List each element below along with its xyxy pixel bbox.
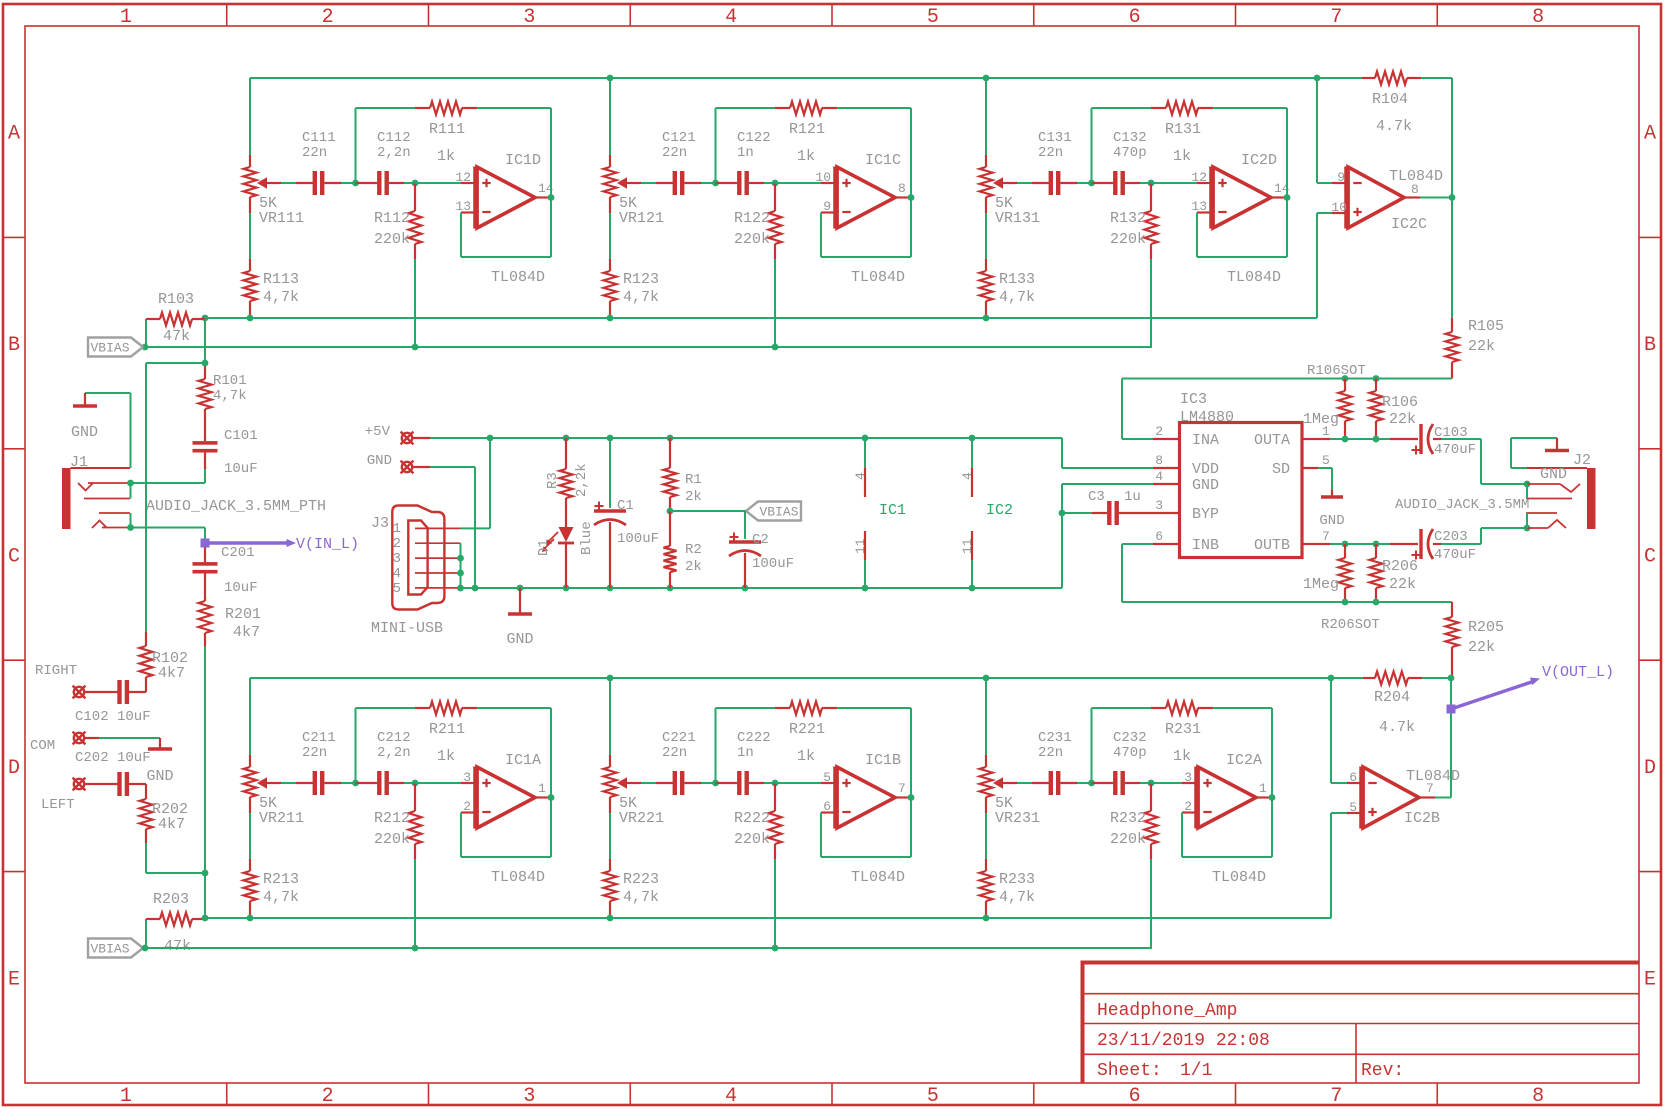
svg-text:D: D (1644, 757, 1656, 780)
svg-text:IC1: IC1 (879, 502, 906, 519)
svg-text:22n: 22n (1038, 745, 1063, 761)
svg-text:C132: C132 (1113, 130, 1147, 146)
svg-text:4: 4 (725, 6, 737, 29)
svg-text:R232: R232 (1110, 810, 1146, 827)
svg-text:1Meg: 1Meg (1303, 411, 1339, 428)
svg-text:C203: C203 (1434, 529, 1468, 545)
svg-text:4k7: 4k7 (158, 816, 185, 833)
svg-text:C: C (1644, 546, 1656, 569)
svg-text:220k: 220k (374, 231, 410, 248)
svg-text:Headphone_Amp: Headphone_Amp (1097, 1001, 1237, 1021)
svg-text:22n: 22n (662, 745, 687, 761)
svg-text:R233: R233 (999, 871, 1035, 888)
svg-text:R104: R104 (1372, 91, 1408, 108)
svg-text:C212: C212 (377, 730, 411, 746)
svg-text:3: 3 (393, 551, 401, 567)
svg-text:R212: R212 (374, 810, 410, 827)
svg-text:R223: R223 (623, 871, 659, 888)
svg-text:C1: C1 (617, 498, 634, 514)
svg-text:C122: C122 (737, 130, 771, 146)
svg-text:4,7k: 4,7k (623, 889, 659, 906)
svg-text:11: 11 (853, 538, 868, 554)
svg-text:7: 7 (1330, 1085, 1342, 1108)
svg-text:10uF: 10uF (224, 580, 258, 596)
svg-text:470p: 470p (1113, 745, 1147, 761)
svg-text:2,2k: 2,2k (574, 463, 590, 497)
svg-text:INA: INA (1192, 432, 1219, 449)
svg-text:VR131: VR131 (995, 210, 1040, 227)
svg-text:4,7k: 4,7k (999, 889, 1035, 906)
svg-text:RIGHT: RIGHT (35, 663, 77, 679)
svg-text:13: 13 (1191, 199, 1207, 214)
svg-text:11: 11 (960, 538, 975, 554)
svg-text:A: A (8, 123, 20, 146)
svg-text:Sheet:: Sheet: (1097, 1061, 1162, 1081)
svg-text:SD: SD (1272, 461, 1290, 478)
svg-text:2k: 2k (685, 489, 702, 505)
svg-text:C231: C231 (1038, 730, 1072, 746)
svg-text:5: 5 (927, 1085, 939, 1108)
svg-text:R205: R205 (1468, 619, 1504, 636)
svg-text:IC3: IC3 (1180, 391, 1207, 408)
svg-text:R206SOT: R206SOT (1321, 617, 1380, 633)
svg-text:IC2B: IC2B (1404, 810, 1440, 827)
svg-text:2: 2 (322, 1085, 334, 1108)
svg-text:GND: GND (146, 768, 173, 785)
svg-text:C112: C112 (377, 130, 411, 146)
svg-text:12: 12 (1191, 170, 1207, 185)
svg-text:IC2D: IC2D (1241, 152, 1277, 169)
svg-text:6: 6 (1129, 1085, 1141, 1108)
svg-text:4: 4 (1155, 469, 1163, 484)
svg-text:IC1D: IC1D (505, 152, 541, 169)
svg-text:R231: R231 (1165, 721, 1201, 738)
svg-text:LM4880: LM4880 (1180, 409, 1234, 426)
svg-text:R122: R122 (734, 210, 770, 227)
svg-text:A: A (1644, 123, 1656, 146)
svg-text:B: B (8, 334, 20, 357)
svg-text:4,7k: 4,7k (263, 289, 299, 306)
svg-text:E: E (8, 968, 20, 991)
svg-text:470uF: 470uF (1434, 547, 1476, 563)
svg-text:3: 3 (463, 770, 471, 785)
svg-text:GND: GND (367, 453, 392, 469)
svg-text:220k: 220k (1110, 831, 1146, 848)
svg-text:1: 1 (1259, 781, 1267, 796)
svg-text:VBIAS: VBIAS (759, 505, 798, 520)
svg-text:TL084D: TL084D (1389, 168, 1443, 185)
svg-text:VDD: VDD (1192, 461, 1219, 478)
svg-text:R2: R2 (685, 542, 702, 558)
svg-text:6: 6 (823, 799, 831, 814)
svg-text:1k: 1k (797, 148, 815, 165)
svg-text:TL084D: TL084D (491, 269, 545, 286)
svg-text:22k: 22k (1468, 639, 1495, 656)
svg-text:R204: R204 (1374, 689, 1410, 706)
svg-text:1: 1 (393, 521, 401, 537)
svg-text:J2: J2 (1573, 452, 1591, 469)
svg-text:GND: GND (71, 424, 98, 441)
svg-text:2: 2 (463, 799, 471, 814)
svg-text:6: 6 (1155, 529, 1163, 544)
svg-text:VBIAS: VBIAS (90, 942, 129, 957)
svg-text:1/1: 1/1 (1180, 1061, 1212, 1081)
svg-text:12: 12 (455, 170, 471, 185)
svg-text:23/11/2019 22:08: 23/11/2019 22:08 (1097, 1031, 1270, 1051)
svg-text:C102 10uF: C102 10uF (75, 709, 151, 725)
svg-text:1k: 1k (1173, 148, 1191, 165)
svg-text:1: 1 (120, 1085, 132, 1108)
svg-text:7: 7 (1322, 529, 1330, 544)
svg-text:D: D (8, 757, 20, 780)
svg-text:22n: 22n (1038, 145, 1063, 161)
svg-text:1k: 1k (437, 748, 455, 765)
svg-text:OUTA: OUTA (1254, 432, 1290, 449)
svg-text:VR231: VR231 (995, 810, 1040, 827)
svg-text:GND: GND (1540, 466, 1567, 483)
svg-text:AUDIO_JACK_3.5MM_PTH: AUDIO_JACK_3.5MM_PTH (146, 498, 326, 515)
svg-text:C121: C121 (662, 130, 696, 146)
svg-text:E: E (1644, 968, 1656, 991)
svg-text:IC1C: IC1C (865, 152, 901, 169)
svg-text:9: 9 (823, 199, 831, 214)
svg-text:IC1A: IC1A (505, 752, 541, 769)
svg-text:47k: 47k (163, 328, 190, 345)
svg-text:5: 5 (1349, 800, 1357, 815)
svg-text:1: 1 (538, 781, 546, 796)
svg-text:6: 6 (1349, 770, 1357, 785)
svg-text:10: 10 (815, 170, 831, 185)
svg-text:IC2C: IC2C (1391, 216, 1427, 233)
svg-text:IC2: IC2 (986, 502, 1013, 519)
svg-text:R111: R111 (429, 121, 465, 138)
svg-text:J3: J3 (371, 515, 389, 532)
svg-text:4k7: 4k7 (158, 665, 185, 682)
svg-text:VR211: VR211 (259, 810, 304, 827)
svg-text:TL084D: TL084D (1406, 768, 1460, 785)
svg-text:7: 7 (898, 781, 906, 796)
svg-text:5: 5 (1322, 453, 1330, 468)
svg-text:R131: R131 (1165, 121, 1201, 138)
svg-text:2,2n: 2,2n (377, 145, 411, 161)
svg-text:TL084D: TL084D (1212, 869, 1266, 886)
svg-text:LEFT: LEFT (41, 797, 75, 813)
svg-text:3: 3 (523, 1085, 535, 1108)
svg-text:2: 2 (322, 6, 334, 29)
svg-text:1k: 1k (1173, 748, 1191, 765)
svg-text:10uF: 10uF (224, 461, 258, 477)
svg-text:R113: R113 (263, 271, 299, 288)
svg-text:C202 10uF: C202 10uF (75, 750, 151, 766)
svg-text:22n: 22n (302, 745, 327, 761)
svg-text:1n: 1n (737, 745, 754, 761)
svg-text:1k: 1k (797, 748, 815, 765)
svg-text:R203: R203 (153, 891, 189, 908)
svg-text:1n: 1n (737, 145, 754, 161)
svg-text:2: 2 (1184, 799, 1192, 814)
svg-text:R106SOT: R106SOT (1307, 363, 1366, 379)
svg-text:R112: R112 (374, 210, 410, 227)
svg-text:6: 6 (1129, 6, 1141, 29)
svg-text:C131: C131 (1038, 130, 1072, 146)
svg-text:TL084D: TL084D (851, 869, 905, 886)
svg-text:VBIAS: VBIAS (90, 341, 129, 356)
svg-text:VR121: VR121 (619, 210, 664, 227)
svg-text:8: 8 (898, 181, 906, 196)
svg-text:4: 4 (725, 1085, 737, 1108)
svg-text:VR221: VR221 (619, 810, 664, 827)
svg-text:10: 10 (1331, 200, 1347, 215)
svg-text:TL084D: TL084D (1227, 269, 1281, 286)
svg-text:2k: 2k (685, 559, 702, 575)
svg-text:C111: C111 (302, 130, 336, 146)
svg-text:4,7k: 4,7k (263, 889, 299, 906)
svg-text:C221: C221 (662, 730, 696, 746)
svg-text:VR111: VR111 (259, 210, 304, 227)
svg-text:9: 9 (1337, 170, 1345, 185)
svg-text:R201: R201 (225, 606, 261, 623)
svg-text:2: 2 (393, 536, 401, 552)
svg-text:4: 4 (853, 472, 868, 480)
svg-text:INB: INB (1192, 537, 1219, 554)
svg-text:1u: 1u (1124, 489, 1141, 505)
svg-text:OUTB: OUTB (1254, 537, 1290, 554)
svg-text:8: 8 (1155, 453, 1163, 468)
svg-text:C101: C101 (224, 428, 258, 444)
svg-text:1: 1 (1322, 424, 1330, 439)
svg-text:22k: 22k (1468, 338, 1495, 355)
svg-text:IC1B: IC1B (865, 752, 901, 769)
svg-text:GND: GND (506, 631, 533, 648)
svg-text:4: 4 (960, 472, 975, 480)
svg-text:47k: 47k (164, 938, 191, 955)
svg-text:R123: R123 (623, 271, 659, 288)
svg-text:220k: 220k (374, 831, 410, 848)
svg-text:22k: 22k (1389, 411, 1416, 428)
svg-text:3: 3 (523, 6, 535, 29)
svg-text:4,7k: 4,7k (999, 289, 1035, 306)
svg-text:13: 13 (455, 199, 471, 214)
svg-text:5: 5 (393, 581, 401, 597)
svg-text:3: 3 (1184, 770, 1192, 785)
svg-text:TL084D: TL084D (491, 869, 545, 886)
svg-text:C222: C222 (737, 730, 771, 746)
svg-text:V(OUT_L): V(OUT_L) (1542, 664, 1614, 681)
svg-text:+5V: +5V (365, 424, 391, 440)
svg-text:R213: R213 (263, 871, 299, 888)
svg-text:COM: COM (30, 738, 55, 754)
svg-text:8: 8 (1532, 6, 1544, 29)
svg-text:1Meg: 1Meg (1303, 576, 1339, 593)
svg-text:TL084D: TL084D (851, 269, 905, 286)
svg-text:GND: GND (1192, 477, 1219, 494)
svg-text:4,7k: 4,7k (623, 289, 659, 306)
svg-text:Blue: Blue (579, 521, 595, 555)
svg-text:4: 4 (393, 566, 401, 582)
svg-text:220k: 220k (734, 831, 770, 848)
svg-text:IC2A: IC2A (1226, 752, 1262, 769)
svg-text:R101: R101 (213, 373, 247, 389)
svg-text:C211: C211 (302, 730, 336, 746)
svg-text:R206: R206 (1382, 558, 1418, 575)
svg-text:GND: GND (1319, 513, 1344, 529)
svg-text:470uF: 470uF (1434, 442, 1476, 458)
svg-text:B: B (1644, 334, 1656, 357)
svg-text:R3: R3 (545, 472, 561, 489)
svg-text:BYP: BYP (1192, 506, 1219, 523)
svg-text:22n: 22n (662, 145, 687, 161)
svg-text:C2: C2 (752, 532, 769, 548)
svg-text:V(IN_L): V(IN_L) (296, 536, 359, 553)
svg-text:J1: J1 (70, 454, 88, 471)
svg-text:D1: D1 (536, 539, 552, 556)
svg-text:100uF: 100uF (752, 556, 794, 572)
svg-text:470p: 470p (1113, 145, 1147, 161)
svg-text:C3: C3 (1088, 489, 1105, 505)
svg-text:R1: R1 (685, 472, 702, 488)
svg-text:1: 1 (120, 6, 132, 29)
svg-text:220k: 220k (1110, 231, 1146, 248)
svg-text:R132: R132 (1110, 210, 1146, 227)
svg-text:220k: 220k (734, 231, 770, 248)
svg-text:R103: R103 (158, 291, 194, 308)
svg-text:R121: R121 (789, 121, 825, 138)
svg-text:4,7k: 4,7k (213, 388, 247, 404)
svg-text:Rev:: Rev: (1361, 1061, 1404, 1081)
svg-text:R106: R106 (1382, 394, 1418, 411)
svg-text:R105: R105 (1468, 318, 1504, 335)
svg-text:2,2n: 2,2n (377, 745, 411, 761)
svg-text:2: 2 (1155, 424, 1163, 439)
svg-text:MINI-USB: MINI-USB (371, 620, 443, 637)
svg-text:100uF: 100uF (617, 531, 659, 547)
svg-text:R222: R222 (734, 810, 770, 827)
svg-text:22k: 22k (1389, 576, 1416, 593)
svg-text:8: 8 (1532, 1085, 1544, 1108)
svg-text:R211: R211 (429, 721, 465, 738)
svg-text:AUDIO_JACK_3.5MM: AUDIO_JACK_3.5MM (1395, 497, 1529, 513)
svg-text:R133: R133 (999, 271, 1035, 288)
svg-text:R221: R221 (789, 721, 825, 738)
svg-text:C232: C232 (1113, 730, 1147, 746)
svg-text:4.7k: 4.7k (1376, 118, 1412, 135)
svg-text:4k7: 4k7 (233, 624, 260, 641)
svg-text:C: C (8, 546, 20, 569)
svg-text:C201: C201 (221, 545, 255, 561)
svg-text:1k: 1k (437, 148, 455, 165)
svg-text:22n: 22n (302, 145, 327, 161)
svg-text:4.7k: 4.7k (1379, 719, 1415, 736)
svg-text:5: 5 (823, 770, 831, 785)
svg-text:3: 3 (1155, 498, 1163, 513)
svg-text:7: 7 (1330, 6, 1342, 29)
svg-text:5: 5 (927, 6, 939, 29)
